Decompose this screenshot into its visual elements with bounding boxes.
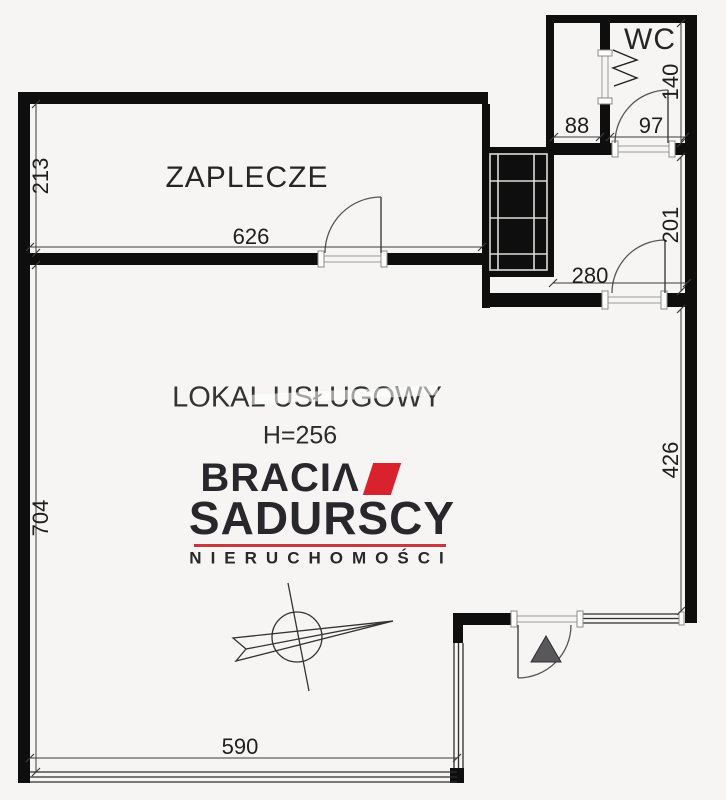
dim-label-426: 426 xyxy=(660,442,682,479)
wall-segment xyxy=(482,293,602,307)
wall-segment xyxy=(546,143,612,155)
ceiling-height-label: H=256 xyxy=(263,424,337,449)
wall-segment xyxy=(600,15,610,50)
wall-segment xyxy=(546,15,554,155)
wall-segment xyxy=(18,253,318,265)
wall-segment xyxy=(387,253,490,265)
wall-segment xyxy=(685,15,697,623)
stair-shaft-icon xyxy=(482,147,554,277)
room-label-zaplecze: ZAPLECZE xyxy=(165,163,328,193)
compass-rose-icon xyxy=(233,583,393,691)
dim-label-590: 590 xyxy=(222,736,259,758)
dim-label-280: 280 xyxy=(572,265,609,287)
wall-segment xyxy=(675,143,697,155)
dim-label-97: 97 xyxy=(639,115,663,137)
entrance-triangle-icon xyxy=(531,636,561,662)
floor-plan: ZAPLECZE WC LOKAL USŁUGOWY H=256 213 704… xyxy=(0,0,726,800)
windows xyxy=(30,614,683,782)
logo-underline xyxy=(194,544,446,547)
dim-label-88: 88 xyxy=(565,115,589,137)
room-label-wc: WC xyxy=(624,25,676,55)
wall-segment xyxy=(453,613,517,625)
dim-label-704: 704 xyxy=(30,500,52,537)
wall-segment xyxy=(453,625,463,643)
wall-segment xyxy=(667,293,697,307)
wall-segment xyxy=(450,768,464,783)
dim-label-213: 213 xyxy=(30,158,52,195)
dim-label-626: 626 xyxy=(233,226,270,248)
wall-segment xyxy=(18,92,30,783)
wall-segment xyxy=(546,15,697,23)
dim-label-201: 201 xyxy=(660,207,682,244)
dim-label-140: 140 xyxy=(660,64,682,101)
wall-segment xyxy=(18,92,488,104)
wall-segment xyxy=(600,104,610,147)
logo-brand-line2: SADURSCY xyxy=(189,495,455,541)
logo-tagline: NIERUCHOMOŚCI xyxy=(189,550,452,567)
